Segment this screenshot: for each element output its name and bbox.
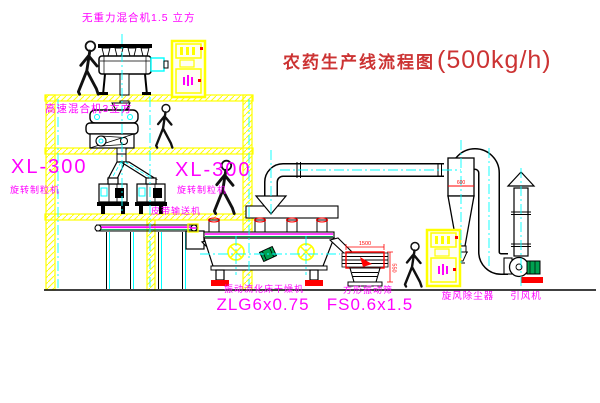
label-granulator-name-left: 旋转制粒机 <box>10 186 60 195</box>
dim-sieve-length: 1500 <box>359 241 371 247</box>
label-sieve-name: 方形振动筛 <box>343 286 393 295</box>
control-cabinet-lower <box>427 230 460 286</box>
induced-draft-fan <box>504 258 543 284</box>
control-cabinet-upper <box>172 41 205 97</box>
label-cyclone: 旋风除尘器 <box>442 292 495 302</box>
dim-cyclone-width: 600 <box>457 180 466 186</box>
fan-motor-icon <box>527 261 540 274</box>
label-gravity-mixer: 无重力混合机1.5 立方 <box>82 13 196 24</box>
page-title: 农药生产线流程图 (500kg/h) <box>283 46 552 75</box>
page-title-text: 农药生产线流程图 <box>283 48 435 73</box>
dim-sieve-height: 550 <box>391 263 397 272</box>
page-title-capacity: (500kg/h) <box>437 46 552 75</box>
label-dryer-model: ZLG6x0.75 <box>216 296 309 313</box>
person-figure-ground <box>405 243 422 287</box>
label-dryer-name: 振动流化床干燥机 <box>224 285 304 294</box>
label-granulator-model-center: XL-300 <box>175 160 252 180</box>
label-granulator-name-center: 旋转制粒机 <box>177 186 227 195</box>
y-chute <box>108 162 156 179</box>
label-high-speed-mixer: 高速混合机3立方 <box>45 104 132 115</box>
cad-flow-diagram: 1500 550 600 农药生产线流程图 (500kg/h) 无重力混合机1.… <box>0 0 600 403</box>
label-belt-conveyor: 皮带输送机 <box>151 207 201 216</box>
label-granulator-model-left: XL-300 <box>11 157 88 177</box>
label-sieve-model: FS0.6x1.5 <box>327 296 414 313</box>
person-figure-mid <box>156 104 172 147</box>
person-figure-top <box>78 41 98 94</box>
granulator-left-unit <box>97 178 129 214</box>
label-fan: 引风机 <box>510 292 542 302</box>
